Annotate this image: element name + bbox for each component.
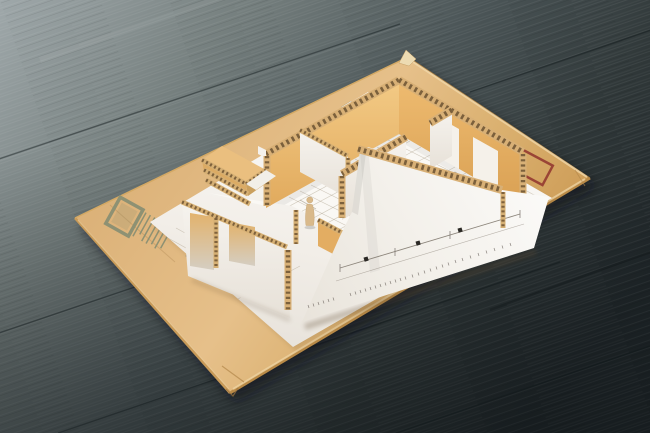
- photo-architectural-model: [0, 0, 650, 433]
- facade-window-opening: [190, 213, 214, 270]
